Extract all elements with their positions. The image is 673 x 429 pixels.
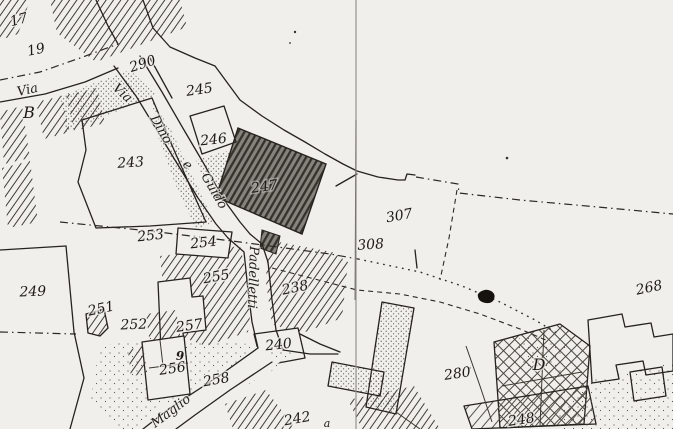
parcel-label-240: 240 xyxy=(263,336,292,355)
speck xyxy=(289,42,291,44)
cadastral-map-scan: 17 19 290 245 246 243 247 253 254 255 23… xyxy=(0,0,673,429)
parcel-label-246: 246 xyxy=(198,131,227,150)
parcel-label-308: 308 xyxy=(357,236,385,254)
speck xyxy=(294,31,296,33)
annotation-9: 9 xyxy=(176,349,185,363)
speck xyxy=(506,157,509,160)
annotation-a: a xyxy=(324,417,331,429)
building-letter-b: B xyxy=(22,103,35,122)
parcel-label-253: 253 xyxy=(135,227,164,246)
map-canvas: 17 19 290 245 246 243 247 253 254 255 23… xyxy=(0,0,673,429)
parcel-label-252: 252 xyxy=(119,317,147,334)
parcel-label-254: 254 xyxy=(188,234,217,253)
parcel-label-248: 248 xyxy=(506,410,536,429)
street-label-padelletti: Padelletti xyxy=(244,245,261,309)
parcel-label-249: 249 xyxy=(18,284,46,301)
parcel-label-243: 243 xyxy=(116,154,145,172)
building-letter-d: D xyxy=(532,355,546,374)
